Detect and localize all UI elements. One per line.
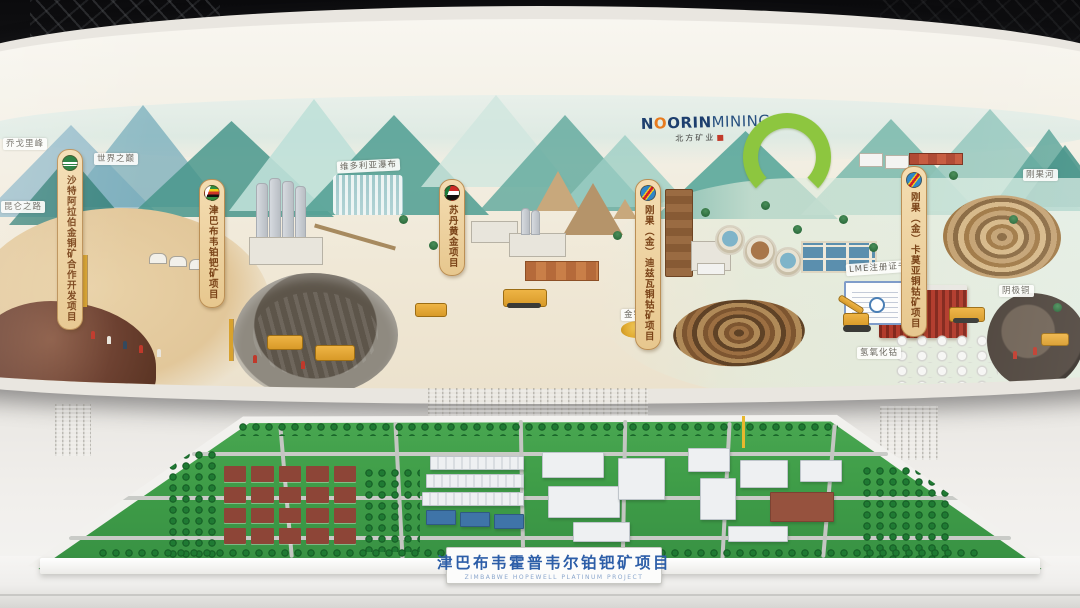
red-seal-icon (717, 134, 723, 140)
tree (839, 215, 848, 224)
tree (761, 201, 770, 210)
underground-loader (1041, 333, 1069, 346)
underground-loader (267, 335, 303, 350)
tree (949, 171, 958, 180)
plant-building (509, 233, 566, 257)
project-banner-label: 刚果（金）迪兹瓦铜钴矿项目 (643, 205, 653, 342)
model-warehouse (430, 456, 524, 470)
thickener-pond (743, 235, 777, 269)
model-warehouse (422, 492, 524, 506)
camp-building (306, 528, 328, 544)
label-kunlun-road: 昆仑之路 (1, 201, 45, 213)
model-brick-building (770, 492, 834, 522)
project-banner-saudi: 沙特阿拉伯金铜矿合作开发项目 (57, 149, 83, 330)
dr-congo-flag-icon (906, 172, 922, 188)
truck-wheels (507, 303, 541, 308)
miner-figure (301, 361, 305, 369)
model-tree-grove (168, 450, 220, 560)
camp-building (279, 508, 301, 524)
plant-silo (282, 181, 294, 241)
plant-silo (531, 210, 540, 235)
cobalt-hydroxide-bags (894, 333, 998, 383)
loader-wheels (953, 318, 979, 323)
camp-building (224, 466, 246, 482)
camp-building (306, 508, 328, 524)
logo-letters-rin: ORIN (667, 113, 712, 132)
dr-congo-flag-icon (640, 185, 656, 201)
conveyor-belt (314, 224, 396, 251)
thickener-pond (773, 247, 803, 277)
model-housing-camp (224, 466, 356, 544)
plant-silo (269, 178, 281, 241)
project-banner-sudan: 苏丹黄金项目 (439, 179, 465, 276)
exhibition-hall-photo: NOORINMINING 北方矿业 (0, 0, 1080, 608)
tree (869, 243, 878, 252)
model-warehouse (426, 474, 524, 488)
plant-building (249, 237, 323, 265)
miner-figure (1033, 347, 1037, 355)
model-tree-row (238, 422, 838, 436)
thickener-pond (715, 225, 745, 255)
project-banner-drc-east: 刚果（金）卡莫亚铜钴矿项目 (901, 166, 927, 337)
excavator-tracks (843, 325, 871, 332)
drill-rig-mast (83, 255, 87, 307)
camp-building (306, 466, 328, 482)
model-plant-building (740, 460, 788, 488)
tanker-truck (859, 153, 883, 167)
smelter-tower (665, 189, 693, 277)
plant-silo (256, 183, 268, 241)
camp-building (279, 466, 301, 482)
project-banner-zimbabwe: 津巴布韦铂钯矿项目 (199, 179, 225, 308)
certificate-stamp-icon (869, 297, 885, 313)
green-ring-logo-icon (743, 113, 831, 201)
camp-tent (149, 253, 167, 264)
tanker-truck (885, 155, 909, 169)
tree (613, 231, 622, 240)
model-nameplate: 津巴布韦霍普韦尔铂钯矿项目 ZIMBABWE HOPEWELL PLATINUM… (446, 547, 662, 584)
waterfall-illustration (333, 175, 403, 215)
curved-led-screen-frame: NOORINMINING 北方矿业 (0, 6, 1080, 404)
model-plant-building (548, 486, 620, 518)
bulldozer (415, 303, 447, 317)
camp-building (334, 466, 356, 482)
tree (793, 225, 802, 234)
project-banner-label: 苏丹黄金项目 (447, 205, 457, 268)
tree (701, 208, 710, 217)
model-plant-building (728, 526, 788, 542)
model-tree-grove (364, 468, 420, 552)
camp-building (251, 508, 273, 524)
miner-figure (107, 336, 111, 344)
tree (399, 215, 408, 224)
camp-building (224, 508, 246, 524)
project-banner-label: 津巴布韦铂钯矿项目 (207, 205, 217, 300)
camp-building (279, 528, 301, 544)
label-cobalt-hydroxide: 氢氧化钴 (857, 347, 901, 359)
curved-led-screen: NOORINMINING 北方矿业 (0, 19, 1080, 389)
miner-figure (91, 331, 95, 339)
zimbabwe-flag-icon (204, 185, 220, 201)
camp-building (224, 487, 246, 503)
model-road (192, 452, 888, 456)
sudan-flag-icon (444, 185, 460, 201)
tree (429, 241, 438, 250)
underground-loader (315, 345, 355, 361)
model-plant-building (700, 478, 736, 520)
label-copper-cathode: 阴极铜 (999, 285, 1034, 297)
camp-building (334, 528, 356, 544)
saudi-arabia-flag-icon (62, 155, 78, 171)
model-plant-building (800, 460, 842, 482)
miner-figure (123, 341, 127, 349)
plant-silo (521, 208, 530, 235)
tree (1053, 303, 1062, 312)
logo-letter-n: N (641, 115, 655, 133)
camp-building (251, 487, 273, 503)
model-pond (494, 514, 524, 529)
project-banner-drc-west: 刚果（金）迪兹瓦铜钴矿项目 (635, 179, 661, 350)
camp-tent (169, 256, 187, 267)
nameplate-title-cn: 津巴布韦霍普韦尔铂钯矿项目 (437, 551, 671, 573)
miner-figure (157, 349, 161, 357)
miner-figure (253, 355, 257, 363)
model-pond (460, 512, 490, 527)
camp-building (334, 487, 356, 503)
model-plant-building (573, 522, 630, 542)
plant-silo (295, 186, 306, 241)
label-congo-river: 刚果河 (1023, 169, 1058, 181)
label-peak: 乔戈里峰 (3, 138, 47, 150)
wall-caption-center (428, 388, 648, 420)
nameplate-title-en: ZIMBABWE HOPEWELL PLATINUM PROJECT (465, 574, 644, 581)
label-roof-of-world: 世界之巅 (94, 153, 138, 165)
camp-building (334, 508, 356, 524)
camp-building (251, 528, 273, 544)
model-plant-building (688, 448, 730, 472)
mining-panorama-mural: NOORINMINING 北方矿业 (1, 19, 1080, 389)
model-plant-building (542, 452, 604, 478)
project-banner-label: 沙特阿拉伯金铜矿合作开发项目 (65, 175, 75, 322)
container-stack (525, 261, 599, 281)
underground-mine-cutaway (233, 273, 398, 389)
camp-building (224, 528, 246, 544)
wall-caption-left (55, 404, 91, 456)
tree (1009, 215, 1018, 224)
container-train (909, 153, 963, 165)
site-truck (697, 263, 725, 275)
camp-building (251, 466, 273, 482)
camp-building (279, 487, 301, 503)
floor-edge-line (0, 594, 1080, 596)
miner-figure (1013, 351, 1017, 359)
model-pond (426, 510, 456, 525)
logo-o-mark: O (654, 114, 668, 132)
miner-figure (139, 345, 143, 353)
model-plant-building (618, 458, 665, 500)
project-banner-label: 刚果（金）卡莫亚铜钴矿项目 (909, 192, 919, 329)
camp-building (306, 487, 328, 503)
